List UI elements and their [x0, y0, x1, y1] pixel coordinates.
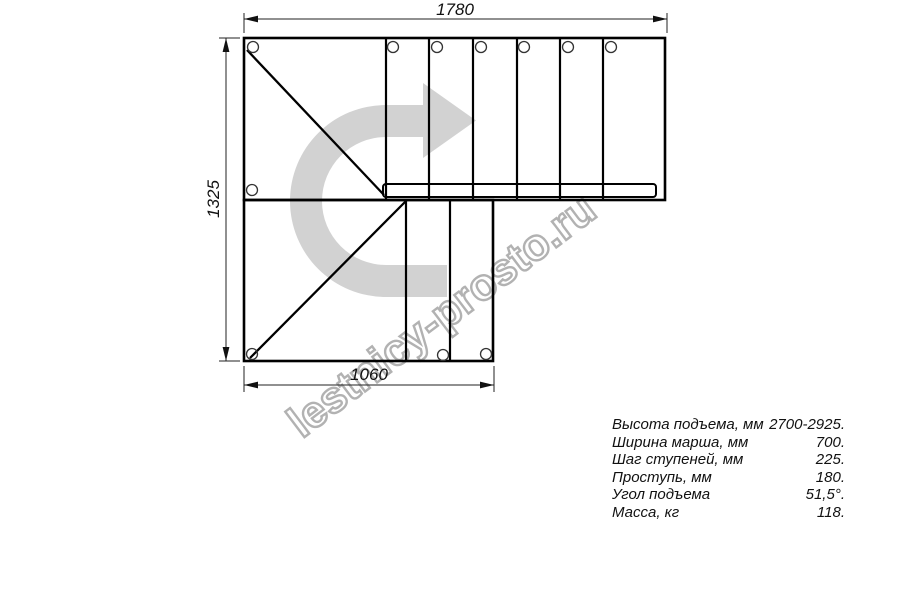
spec-value: 225. [816, 451, 845, 469]
mount-hole-icon [247, 185, 258, 196]
mount-hole-icon [438, 350, 449, 361]
spec-row-height: Высота подъема, мм 2700-2925. [612, 416, 845, 434]
spec-row-tread: Проступь, мм 180. [612, 469, 845, 487]
spec-row-angle: Угол подъема 51,5°. [612, 486, 845, 504]
spec-label: Ширина марша, мм [612, 434, 748, 452]
spec-value: 51,5°. [806, 486, 845, 504]
mount-hole-icon [247, 349, 258, 360]
dimension-arrow-icon [653, 16, 667, 23]
mount-hole-icon [388, 42, 399, 53]
dimension-arrow-icon [223, 38, 230, 52]
mount-hole-icon [606, 42, 617, 53]
spec-label: Высота подъема, мм [612, 416, 764, 434]
mount-hole-icon [432, 42, 443, 53]
spec-label: Угол подъема [612, 486, 710, 504]
dimension-arrow-icon [223, 347, 230, 361]
spec-value: 2700-2925. [769, 416, 845, 434]
stringer-plate [383, 184, 656, 197]
spec-value: 118. [817, 504, 845, 522]
mount-hole-icon [519, 42, 530, 53]
spec-label: Масса, кг [612, 504, 679, 522]
spec-table: Высота подъема, мм 2700-2925. Ширина мар… [612, 416, 845, 521]
dimension-arrow-icon [244, 16, 258, 23]
dimension-label-top: 1780 [436, 0, 474, 19]
spec-label: Шаг ступеней, мм [612, 451, 743, 469]
watermark-text: lestnicy-prosto.ru [279, 184, 605, 447]
mount-hole-icon [481, 349, 492, 360]
mount-hole-icon [248, 42, 259, 53]
spec-value: 700. [816, 434, 845, 452]
mount-hole-icon [563, 42, 574, 53]
spec-row-mass: Масса, кг 118. [612, 504, 845, 522]
dimension-label-bottom: 1060 [350, 365, 388, 384]
mount-hole-icon [476, 42, 487, 53]
spec-row-flight-width: Ширина марша, мм 700. [612, 434, 845, 452]
spec-label: Проступь, мм [612, 469, 712, 487]
dimension-label-left: 1325 [204, 180, 223, 218]
spec-row-step-pitch: Шаг ступеней, мм 225. [612, 451, 845, 469]
dimension-arrow-icon [244, 382, 258, 389]
spec-value: 180. [816, 469, 845, 487]
dimension-arrow-icon [480, 382, 494, 389]
